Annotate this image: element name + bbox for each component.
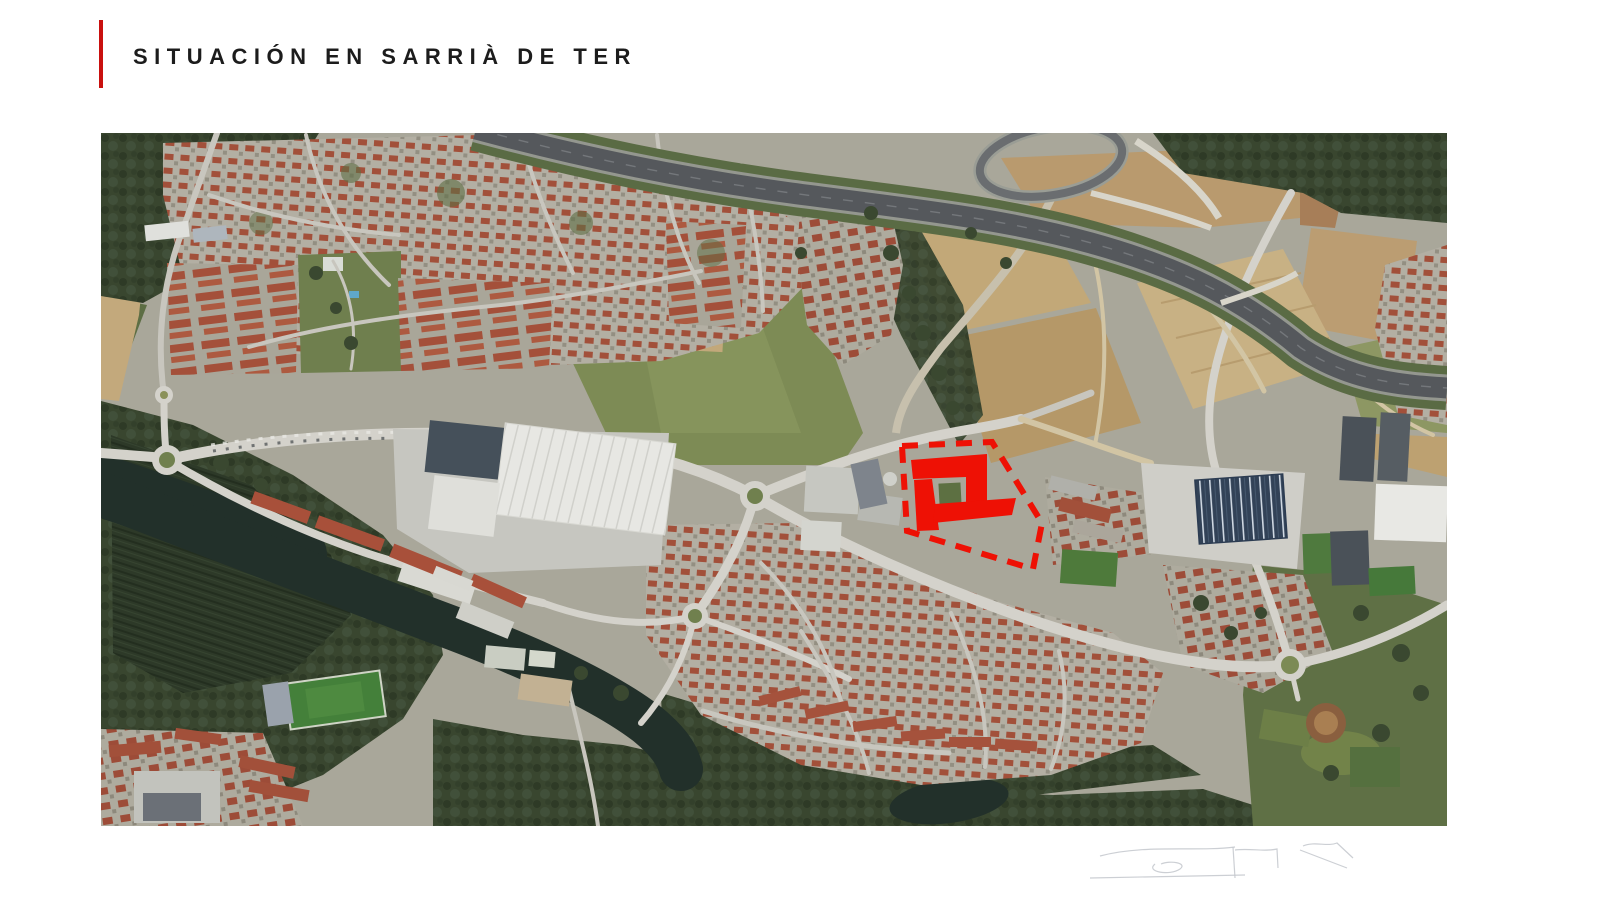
title-accent-bar [99,20,103,88]
sketch-lines [1085,838,1360,888]
slide: SITUACIÓN EN SARRIÀ DE TER [0,0,1600,900]
site-courtyard [938,482,961,505]
page-title: SITUACIÓN EN SARRIÀ DE TER [133,44,637,70]
aerial-map [101,133,1447,826]
solar-roof-building [1141,463,1305,569]
